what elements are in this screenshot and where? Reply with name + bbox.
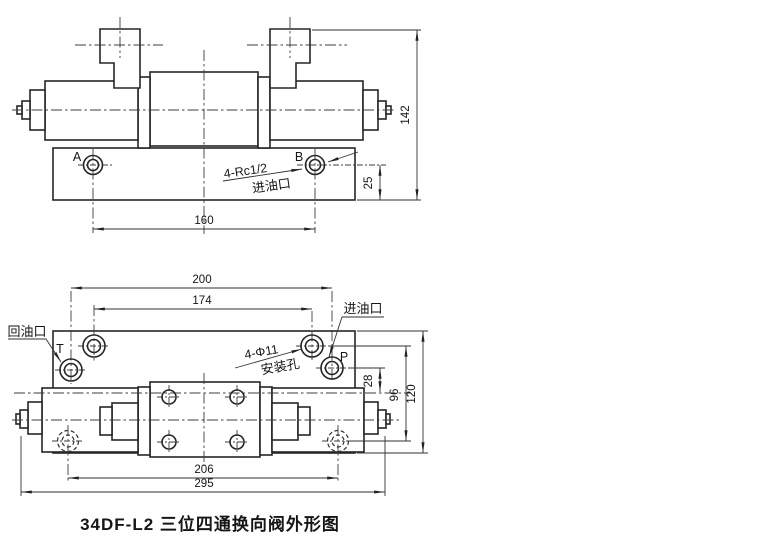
plug-left-inner xyxy=(100,407,112,435)
dim-120-label: 120 xyxy=(406,384,418,403)
engineering-drawing-page: 160 142 25 A B 4-Rc1/2 进油口 xyxy=(0,0,766,552)
plug-right-outer xyxy=(272,403,298,440)
port-t-label: T xyxy=(56,342,64,356)
port-p-label: P xyxy=(340,350,348,364)
solenoid-right-nub-plan xyxy=(386,414,390,424)
dim-25-label: 25 xyxy=(363,177,375,190)
plug-left-outer xyxy=(112,403,138,440)
solenoid-right-front xyxy=(270,81,363,140)
spacer-left-plan xyxy=(138,387,150,455)
dim-28-label: 28 xyxy=(363,375,375,388)
plan-view: 200 174 28 96 120 206 295 回油口 进油口 4-Φ11 … xyxy=(7,274,428,496)
port-a-label: A xyxy=(73,150,82,164)
inlet-port-label: 进油口 xyxy=(343,301,382,316)
solenoid-right-step-plan xyxy=(364,402,378,434)
dim-206-label: 206 xyxy=(194,464,213,476)
spacer-right-plan xyxy=(260,387,272,455)
dim-174-label: 174 xyxy=(192,295,212,307)
dim-160-label: 160 xyxy=(194,215,213,227)
drawing-caption: 34DF-L2 三位四通换向阀外形图 xyxy=(80,514,340,534)
solenoid-left-front xyxy=(45,81,138,140)
return-port-label: 回油口 xyxy=(7,324,46,339)
valve-outline-drawing: 160 142 25 A B 4-Rc1/2 进油口 xyxy=(0,0,766,552)
port-b-label: B xyxy=(295,150,303,164)
solenoid-left-cap-plan xyxy=(20,410,28,428)
solenoid-left-nub-plan xyxy=(16,414,20,424)
plan-view-body-outline xyxy=(16,331,390,457)
spacer-right-front xyxy=(258,77,270,148)
solenoid-right-cap-plan xyxy=(378,410,386,428)
dim-96-label: 96 xyxy=(389,389,401,402)
dim-295-label: 295 xyxy=(194,478,213,490)
dim-142-label: 142 xyxy=(400,105,412,124)
solenoid-left-step-plan xyxy=(28,402,42,434)
dim-200-label: 200 xyxy=(192,274,211,286)
front-view: 160 142 25 A B 4-Rc1/2 进油口 xyxy=(12,17,421,234)
plug-right-inner xyxy=(298,407,310,435)
